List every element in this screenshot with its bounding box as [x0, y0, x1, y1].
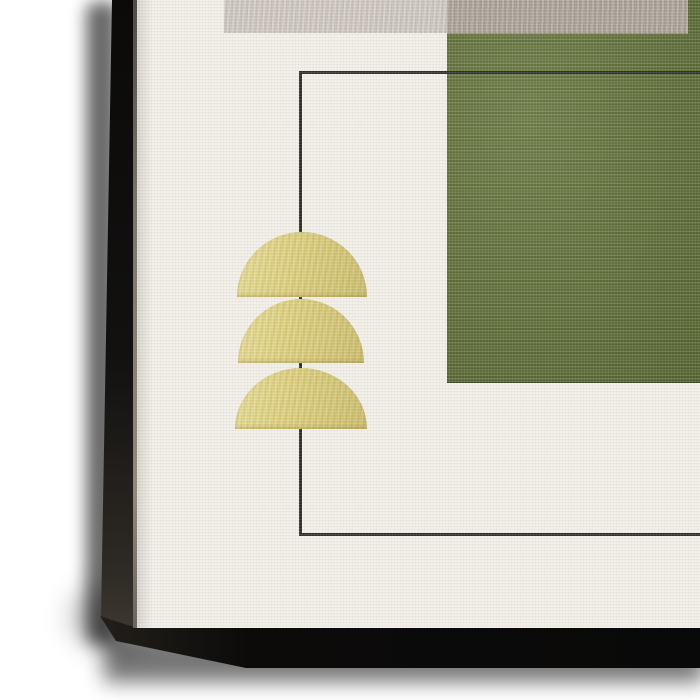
- canvas-front-left-shading: [137, 0, 153, 628]
- art-gray-rectangle-dark: [447, 0, 688, 34]
- canvas-front-face: [137, 0, 700, 628]
- art-gray-rectangle-light: [224, 0, 447, 33]
- scene: [0, 0, 700, 700]
- art-outline-rectangle: [299, 71, 700, 536]
